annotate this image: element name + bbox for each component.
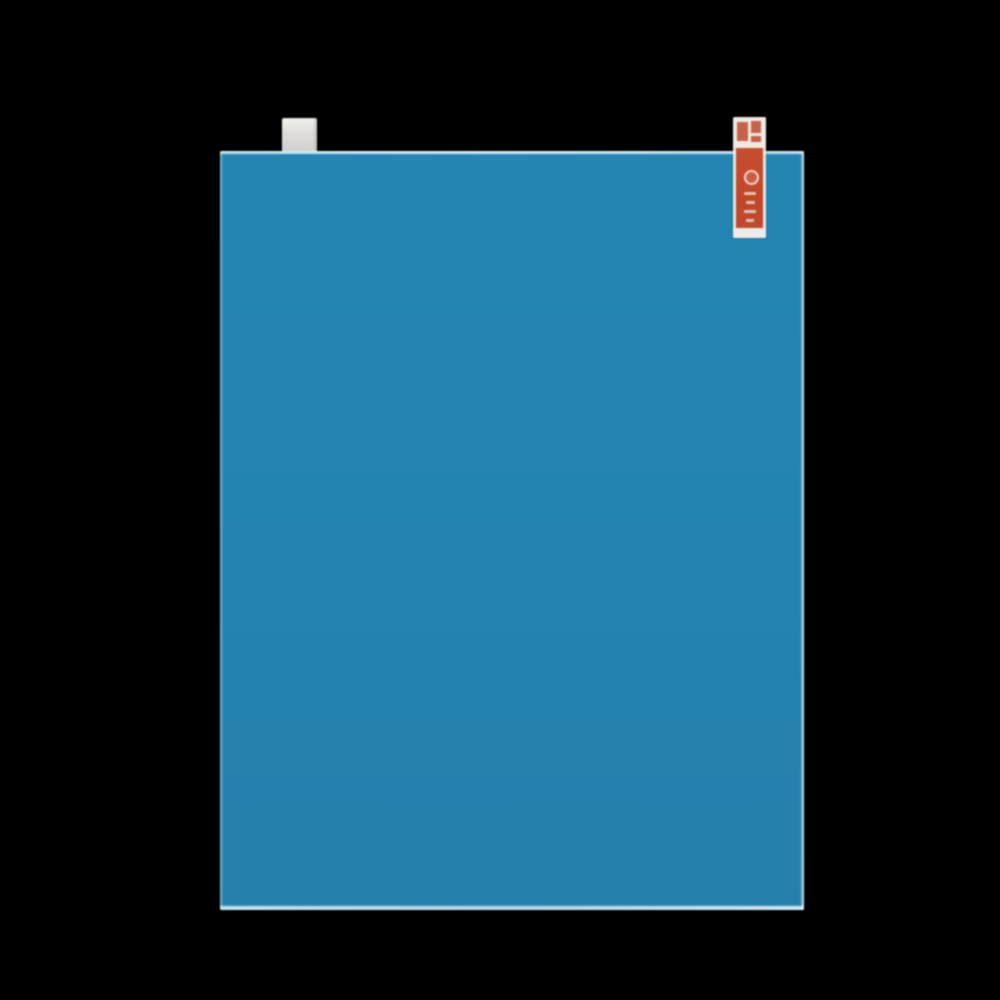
sticker-print-glyph	[737, 122, 748, 141]
sticker-red-strip	[736, 148, 763, 228]
sticker-print-glyph	[751, 121, 761, 133]
photo-group	[0, 0, 1000, 1000]
circle-print-icon	[744, 170, 759, 185]
gray-pull-tab	[282, 118, 317, 154]
film-top-edge-highlight	[220, 151, 804, 154]
sticker-print-mark	[746, 201, 755, 204]
red-pull-tab-sticker	[733, 117, 766, 238]
sticker-print-glyph	[751, 136, 761, 142]
sticker-print-mark	[744, 192, 756, 195]
screen-protector-film	[220, 151, 804, 910]
sticker-print-mark	[746, 219, 754, 222]
film-bottom-edge-highlight	[220, 906, 804, 910]
product-photo	[0, 0, 1000, 1000]
sticker-print-mark	[744, 210, 756, 213]
sticker-white-cap	[733, 117, 766, 148]
sticker-translucent-tip	[733, 228, 766, 238]
